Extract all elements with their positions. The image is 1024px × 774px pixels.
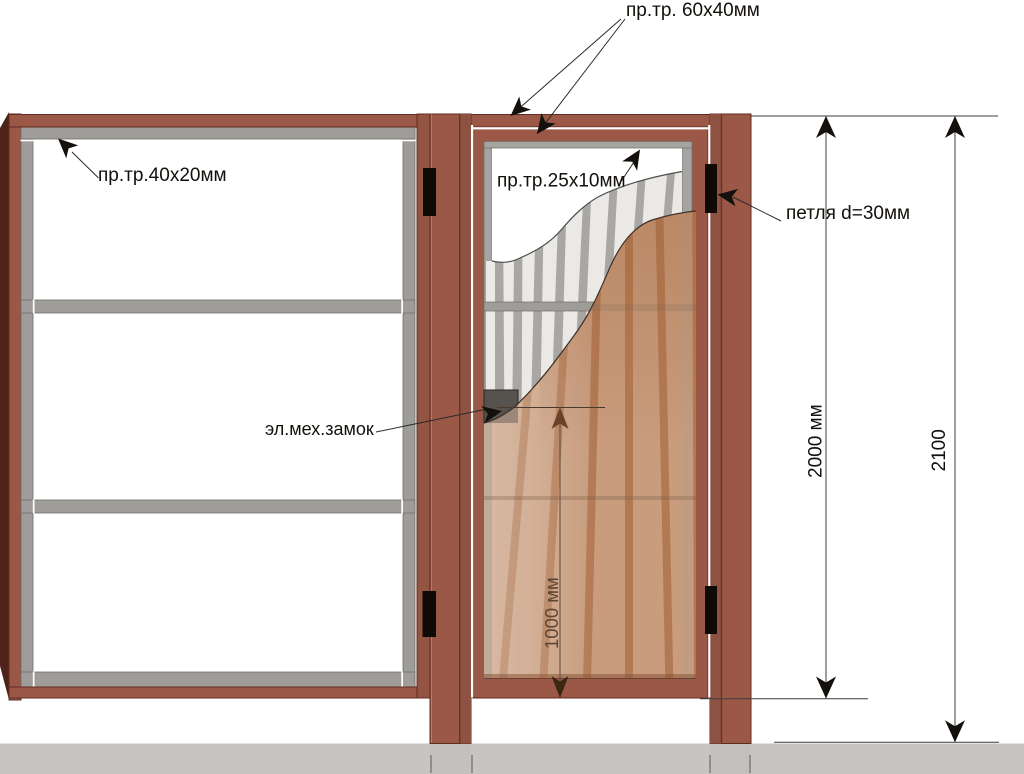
svg-text:пр.тр. 60х40мм: пр.тр. 60х40мм (626, 0, 760, 21)
svg-text:пр.тр.25х10мм: пр.тр.25х10мм (497, 171, 626, 192)
svg-text:1000 мм: 1000 мм (541, 577, 562, 649)
svg-text:пр.тр.40х20мм: пр.тр.40х20мм (98, 165, 227, 186)
svg-text:2000 мм: 2000 мм (806, 404, 827, 478)
svg-text:эл.мех.замок: эл.мех.замок (265, 419, 374, 439)
svg-text:2100: 2100 (929, 429, 950, 471)
svg-text:петля d=30мм: петля d=30мм (786, 203, 910, 224)
